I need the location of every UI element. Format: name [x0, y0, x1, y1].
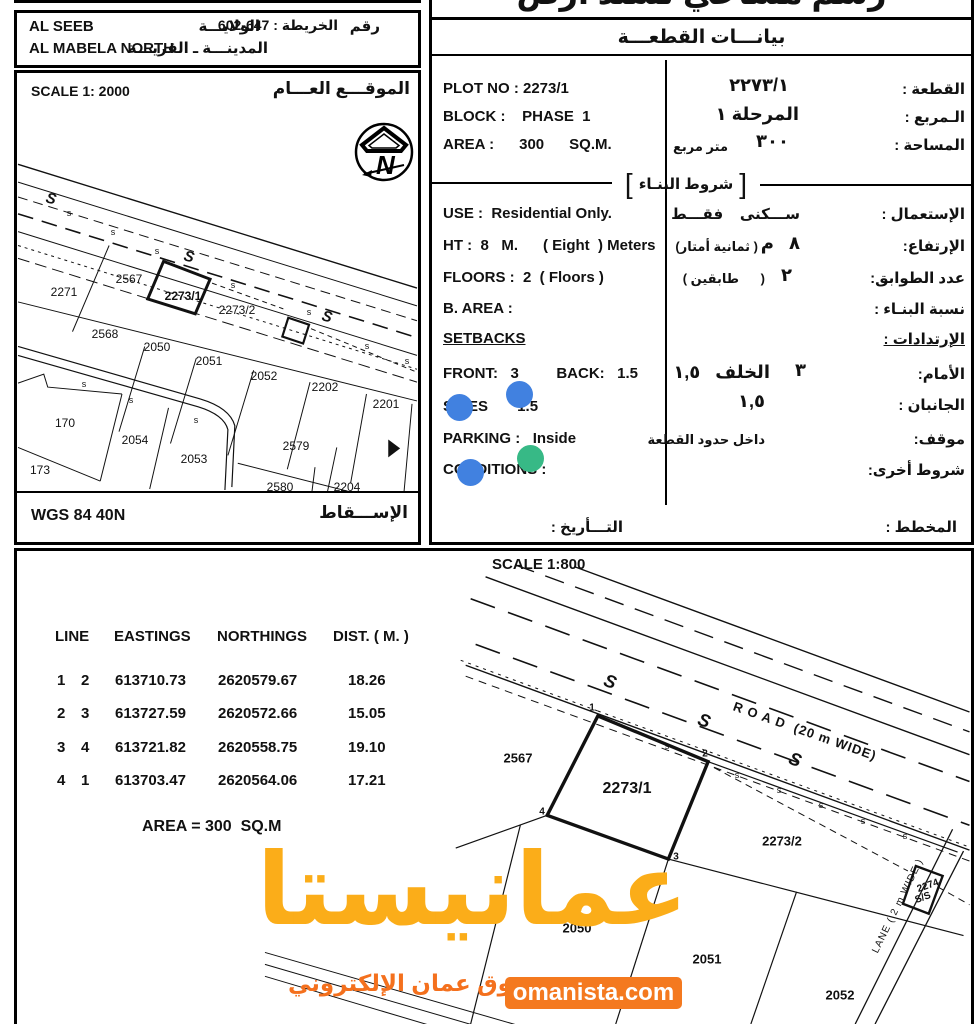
map-label: 2201: [373, 397, 400, 411]
table-cell: 2620564.06: [218, 772, 297, 789]
map-label: 2273/1: [165, 289, 202, 303]
map-label: s: [67, 208, 72, 218]
map-number-value: الخريطة : 647-602: [218, 17, 338, 34]
map-label: s: [194, 415, 199, 425]
plot-data-row-ar: موقف:: [914, 430, 965, 448]
survey-panel: SCALE 1:800: [14, 548, 974, 1024]
table-header: NORTHINGS: [217, 628, 307, 645]
plot-data-row-ar: الـمربع :: [905, 108, 965, 126]
table-cell: 1: [57, 672, 65, 689]
map-label: 2567: [116, 272, 143, 286]
map-label: 2051: [196, 354, 223, 368]
plot-data-row-ar: ١,٥: [738, 391, 765, 412]
table-cell: 18.26: [348, 672, 386, 689]
watermark-logo: عمانيستا: [245, 838, 700, 943]
table-cell: 3: [57, 739, 65, 756]
table-cell: 2620572.66: [218, 705, 297, 722]
plot-data-row-ar: القطعة :: [902, 80, 965, 98]
plot-data-row-ar: المساحة :: [894, 136, 965, 154]
plot-data-row-ar: ( ثمانية أمتار): [675, 239, 758, 255]
svg-text:N: N: [376, 150, 396, 180]
table-cell: 2620579.67: [218, 672, 297, 689]
plot-data-row-ar: الإرتفاع:: [903, 237, 965, 255]
plot-data-arabic-column: القطعة :٢٢٧٣/١الـمربع :المرحلة ١المساحة …: [432, 0, 971, 545]
table-cell: 19.10: [348, 739, 386, 756]
plot-data-row-ar: الأمام:: [918, 365, 965, 383]
plot-data-row-ar: ٢: [781, 265, 792, 286]
table-cell: 613710.73: [115, 672, 186, 689]
site-plan-scale: SCALE 1: 2000: [31, 83, 130, 99]
table-cell: 613703.47: [115, 772, 186, 789]
plot-data-row-ar: ســـكنى فقـــط: [671, 205, 800, 223]
plot-data-row-ar: المخطط :: [886, 518, 957, 536]
table-cell: 613727.59: [115, 705, 186, 722]
map-label: 170: [55, 416, 75, 430]
map-label: 2054: [122, 433, 149, 447]
map-label: 2579: [283, 439, 310, 453]
plot-data-row-ar: ٨ م: [761, 233, 800, 254]
map-label: 2568: [92, 327, 119, 341]
plot-data-row-ar: داخل حدود القطعة: [647, 432, 765, 448]
watermark-tagline: سوق عمان الإلكتروني: [288, 970, 535, 997]
table-header: LINE: [55, 628, 89, 645]
table-cell: 1: [81, 772, 89, 789]
map-label: 2050: [144, 340, 171, 354]
map-label: 2580: [267, 480, 294, 491]
plot-data-row-ar: ٣٠٠: [756, 131, 789, 152]
corner-number: 2: [702, 749, 708, 760]
table-cell: 17.21: [348, 772, 386, 789]
table-header: DIST. ( M. ): [333, 628, 409, 645]
watermark-site-button[interactable]: omanista.com: [505, 977, 682, 1009]
plot-data-row-ar: الإرتدادات :: [884, 330, 965, 348]
plot-data-row-ar: نسبة البنـاء :: [874, 300, 965, 318]
map-label: s: [82, 379, 87, 389]
map-label: 2204: [334, 480, 361, 491]
table-header: EASTINGS: [114, 628, 191, 645]
map-label: 173: [30, 463, 50, 477]
plot-data-row-ar: الجانبان :: [898, 396, 965, 414]
panel-bottom-border: [432, 542, 971, 545]
map-label: 2202: [312, 380, 339, 394]
corner-number: 1: [589, 703, 595, 714]
plot-data-row-ar: المرحلة ١: [716, 104, 799, 125]
map-label: s: [365, 341, 370, 351]
table-cell: 3: [81, 705, 89, 722]
projection-value: WGS 84 40N: [31, 507, 125, 525]
map-label: s: [307, 307, 312, 317]
map-label: s: [129, 395, 134, 405]
plot-data-row-ar: الخلف ١,٥: [673, 362, 770, 383]
village-label-ar: المدينـــة ـ القريـــة: [128, 39, 268, 57]
map-label: S: [320, 307, 334, 326]
plot-data-row-ar: الإستعمال :: [881, 205, 965, 223]
table-cell: 2620558.75: [218, 739, 297, 756]
location-header-box: AL SEEB AL MABELA NORTH الولايـــة المدي…: [14, 10, 421, 68]
map-label: s: [405, 356, 410, 366]
map-label: s: [111, 227, 116, 237]
plot-data-row-ar: متر مربع: [673, 139, 728, 155]
top-cut-border: [14, 0, 421, 3]
plot-data-panel: رسم مساحي لسند أرض بيانـــات القطعـــة […: [429, 0, 974, 545]
map-label: 2052: [251, 369, 278, 383]
plot-data-row-ar: التـــأريخ :: [551, 518, 623, 536]
site-plan-title-ar: الموقـــع العـــام: [273, 79, 410, 99]
north-arrow-icon: N: [352, 120, 416, 184]
corner-number: 4: [539, 807, 545, 818]
wilaya-value-en: AL SEEB: [29, 18, 94, 35]
table-cell: 15.05: [348, 705, 386, 722]
map-label: 2273/2: [219, 303, 256, 317]
map-label: S: [182, 247, 196, 266]
map-label: s: [231, 280, 236, 290]
table-cell: 4: [81, 739, 89, 756]
wgs-separator: [17, 491, 418, 493]
projection-label-ar: الإســـقاط: [319, 503, 408, 523]
map-label: s: [155, 246, 160, 256]
krooki-document: AL SEEB AL MABELA NORTH الولايـــة المدي…: [0, 0, 980, 1024]
plot-data-row-ar: عدد الطوابق:: [870, 269, 965, 287]
plot-data-row-ar: شروط أخرى:: [868, 461, 965, 479]
table-cell: 2: [57, 705, 65, 722]
plot-data-row-ar: ٢٢٧٣/١: [729, 75, 789, 96]
map-label: 2053: [181, 452, 208, 466]
table-cell: 2: [81, 672, 89, 689]
map-label: 2271: [51, 285, 78, 299]
table-cell: 4: [57, 772, 65, 789]
plot-data-row-ar: ( طابقين ): [683, 271, 765, 287]
plot-data-row-ar: ٣: [795, 360, 806, 381]
map-label: S: [44, 189, 58, 208]
table-cell: 613721.82: [115, 739, 186, 756]
map-number-label: رقم: [350, 17, 380, 35]
